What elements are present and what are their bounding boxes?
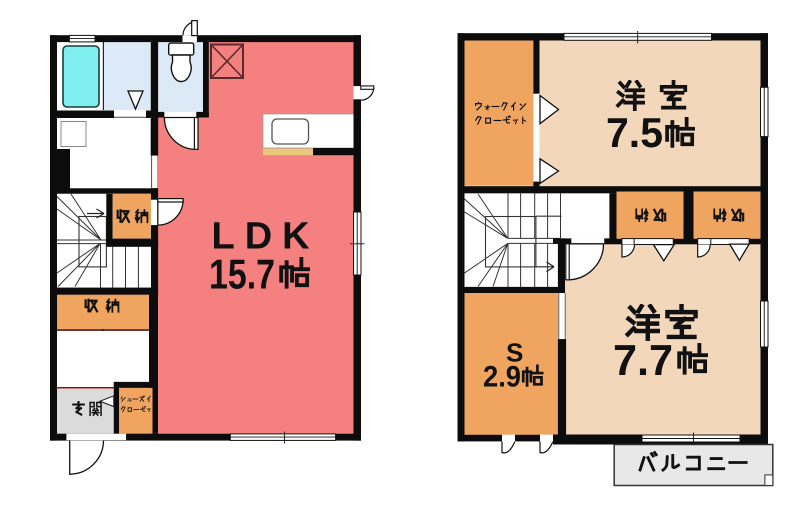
svg-text:15.7: 15.7 (209, 251, 275, 298)
svg-text:7.7: 7.7 (613, 336, 673, 385)
svg-text:2.9: 2.9 (483, 361, 521, 394)
svg-text:7.5: 7.5 (606, 109, 663, 156)
